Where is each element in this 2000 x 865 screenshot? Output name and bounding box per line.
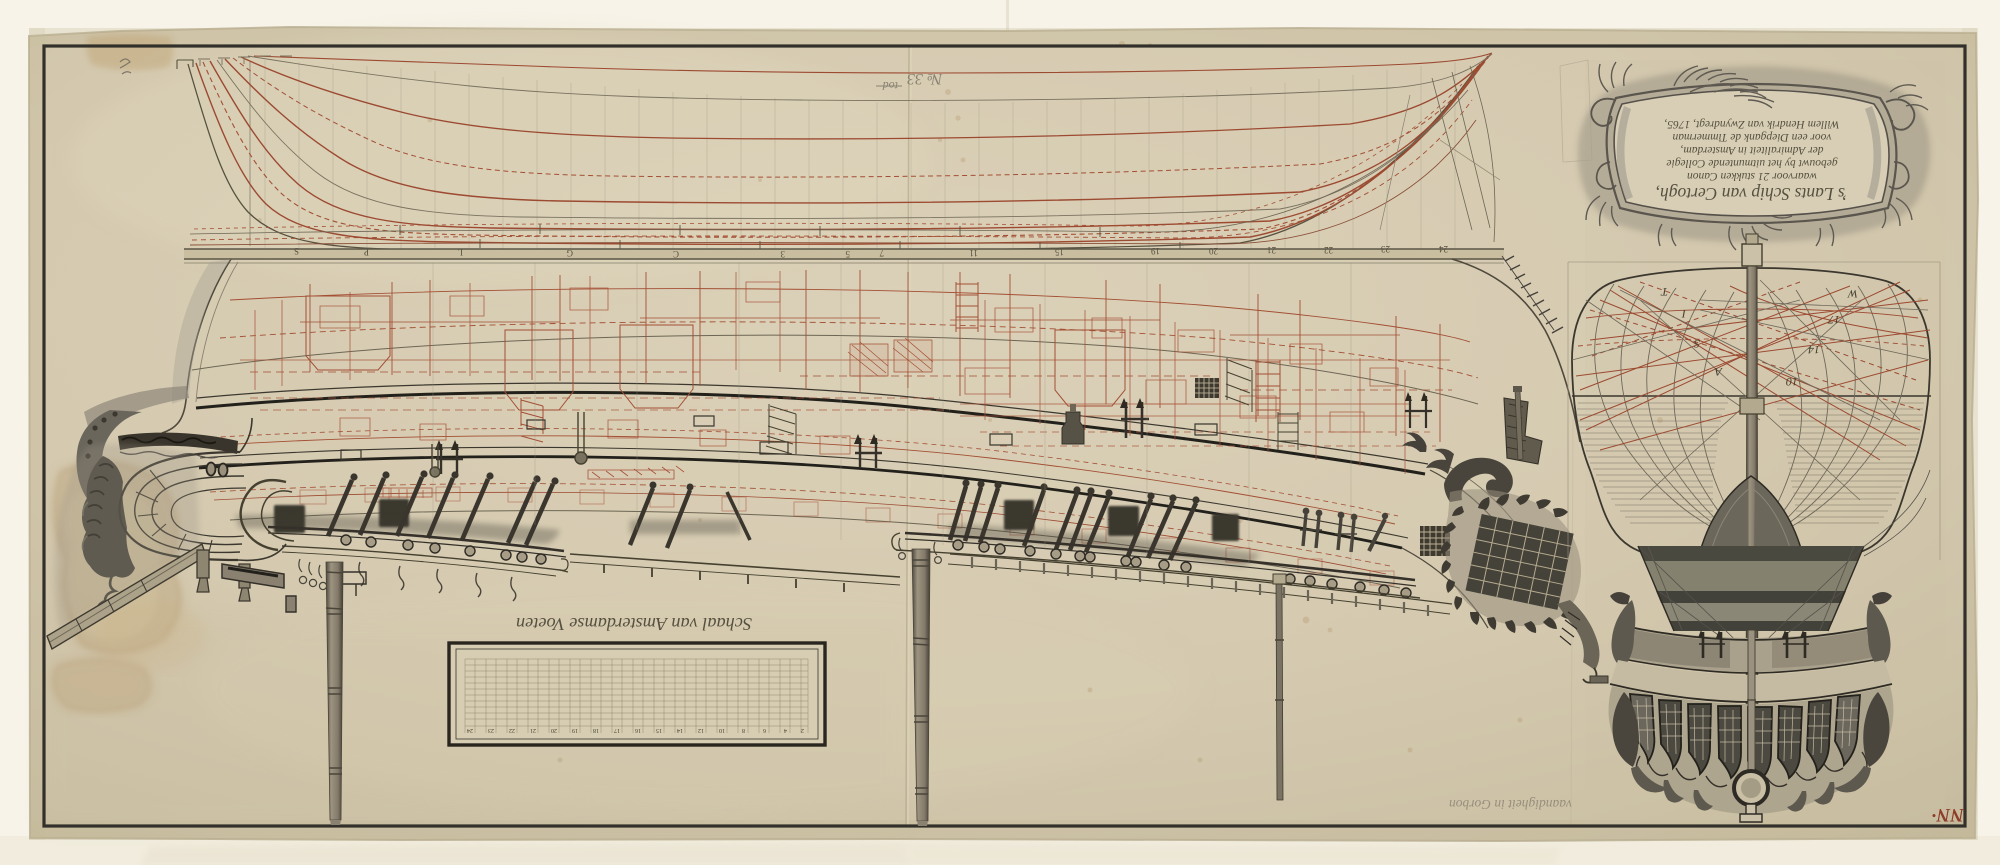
svg-text:22: 22 bbox=[1324, 245, 1333, 255]
svg-text:A: A bbox=[1714, 365, 1723, 379]
svg-text:19: 19 bbox=[1151, 246, 1161, 256]
svg-text:voor een Diepgank de Timmerman: voor een Diepgank de Timmerman bbox=[1672, 131, 1831, 143]
svg-text:NN·: NN· bbox=[1932, 804, 1965, 825]
svg-text:4: 4 bbox=[784, 727, 787, 733]
svg-text:16: 16 bbox=[635, 727, 641, 733]
svg-text:5: 5 bbox=[845, 249, 850, 259]
svg-text:3: 3 bbox=[780, 249, 785, 259]
svg-text:14: 14 bbox=[677, 727, 683, 733]
svg-text:’s Lants Schip van Certogh,: ’s Lants Schip van Certogh, bbox=[1656, 184, 1849, 204]
svg-text:S: S bbox=[294, 246, 299, 256]
svg-text:№ 33: № 33 bbox=[907, 70, 943, 87]
svg-text:21: 21 bbox=[530, 727, 536, 733]
svg-text:C: C bbox=[673, 249, 679, 259]
svg-text:22: 22 bbox=[509, 727, 515, 733]
svg-text:20: 20 bbox=[1209, 246, 1219, 256]
svg-text:der Admiraliteit in Amsterdam,: der Admiraliteit in Amsterdam, bbox=[1680, 144, 1823, 156]
svg-text:G: G bbox=[566, 248, 573, 258]
svg-text:14: 14 bbox=[1808, 343, 1820, 357]
svg-text:20: 20 bbox=[551, 727, 557, 733]
svg-text:23: 23 bbox=[1381, 244, 1391, 254]
svg-text:15: 15 bbox=[656, 727, 662, 733]
svg-text:15: 15 bbox=[1055, 247, 1065, 257]
svg-text:Schaal van Amsterdamse Voeten: Schaal van Amsterdamse Voeten bbox=[516, 614, 752, 634]
svg-text:11: 11 bbox=[969, 248, 978, 258]
svg-text:waarvoor 21 stukken Canon: waarvoor 21 stukken Canon bbox=[1687, 170, 1817, 182]
svg-text:W: W bbox=[1847, 287, 1858, 301]
svg-text:8: 8 bbox=[742, 727, 745, 733]
svg-text:gebouwt by het uitmuntende Col: gebouwt by het uitmuntende Collegie bbox=[1666, 157, 1837, 169]
svg-text:10: 10 bbox=[719, 727, 725, 733]
svg-text:12: 12 bbox=[698, 727, 704, 733]
svg-text:24: 24 bbox=[1439, 244, 1449, 254]
svg-text:10: 10 bbox=[1786, 375, 1798, 389]
svg-text:24: 24 bbox=[467, 727, 473, 733]
svg-text:vaandigheit in Gorbon: vaandigheit in Gorbon bbox=[1449, 797, 1572, 812]
svg-text:21: 21 bbox=[1267, 245, 1276, 255]
svg-text:S: S bbox=[1694, 337, 1700, 351]
svg-text:Willem Hendrik van Zwyndregt,: Willem Hendrik van Zwyndregt, 1765, bbox=[1664, 118, 1839, 130]
svg-text:P: P bbox=[364, 247, 369, 257]
svg-text:2: 2 bbox=[801, 727, 804, 733]
svg-text:17: 17 bbox=[614, 727, 620, 733]
svg-text:L: L bbox=[458, 247, 464, 257]
svg-text:19: 19 bbox=[572, 727, 578, 733]
svg-text:7: 7 bbox=[879, 248, 884, 258]
svg-text:18: 18 bbox=[593, 727, 599, 733]
svg-text:6: 6 bbox=[763, 727, 766, 733]
svg-text:23: 23 bbox=[488, 727, 494, 733]
svg-text:17: 17 bbox=[1827, 313, 1840, 327]
